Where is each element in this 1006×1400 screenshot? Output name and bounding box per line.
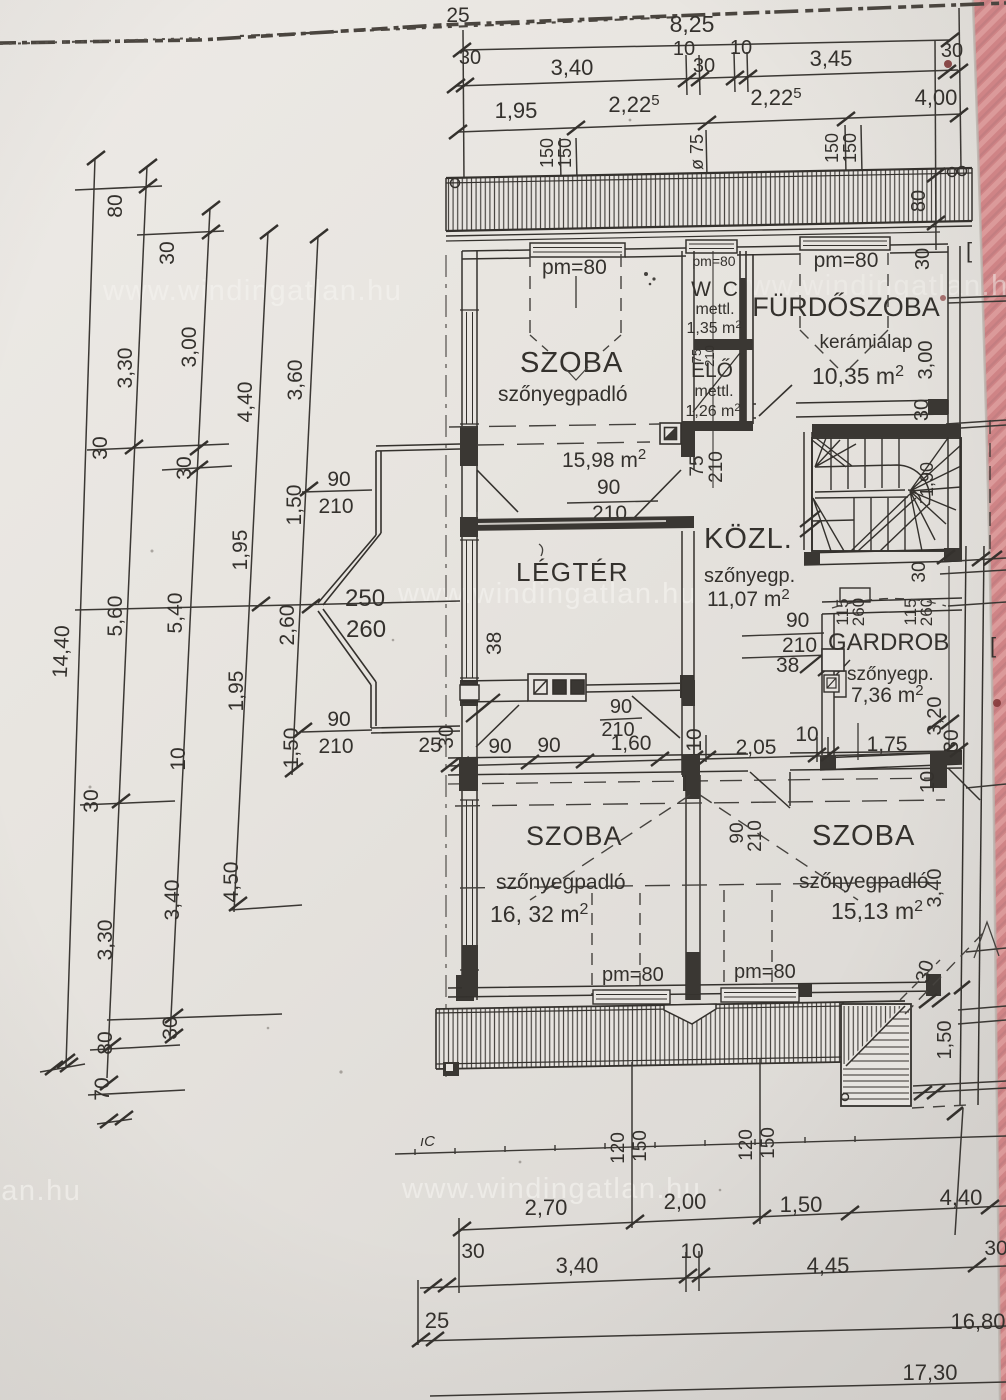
svg-text:150: 150	[630, 1130, 651, 1162]
svg-text:LÉGTÉR: LÉGTÉR	[516, 557, 629, 587]
svg-text:90: 90	[610, 696, 632, 718]
svg-text:3,00: 3,00	[178, 327, 201, 368]
svg-text:10: 10	[917, 771, 939, 793]
svg-text:GARDROB: GARDROB	[828, 629, 949, 656]
svg-text:7,36 m2: 7,36 m2	[851, 682, 924, 707]
svg-text:30: 30	[911, 399, 933, 421]
svg-text:szőnyegp.: szőnyegp.	[704, 565, 795, 587]
svg-text:16, 32 m2: 16, 32 m2	[490, 901, 589, 927]
svg-text:KÖZL.: KÖZL.	[704, 523, 793, 555]
svg-text:8,25: 8,25	[670, 11, 715, 37]
svg-text:250: 250	[345, 585, 385, 612]
svg-text:ø 75: ø 75	[687, 134, 707, 170]
svg-text:1,50: 1,50	[280, 728, 303, 769]
svg-text:3,30: 3,30	[94, 920, 117, 961]
svg-text:90: 90	[488, 735, 511, 758]
svg-text:10: 10	[683, 728, 706, 751]
svg-text:SZOBA: SZOBA	[526, 821, 623, 851]
svg-text:5,40: 5,40	[164, 593, 187, 634]
svg-text:90: 90	[786, 609, 809, 632]
svg-text:1,50: 1,50	[934, 1021, 956, 1060]
svg-text:150: 150	[840, 133, 860, 163]
svg-text:2,60: 2,60	[276, 605, 299, 646]
svg-text:2,05: 2,05	[736, 736, 777, 759]
svg-text:90: 90	[597, 476, 620, 499]
svg-text:75: 75	[687, 455, 708, 476]
svg-text:25: 25	[446, 4, 469, 27]
svg-text:1,50: 1,50	[780, 1192, 823, 1217]
svg-text:1,90: 1,90	[917, 462, 937, 497]
svg-text:210: 210	[702, 345, 717, 367]
svg-text:30: 30	[89, 436, 112, 459]
svg-text:3,60: 3,60	[284, 360, 307, 401]
svg-text:1,60: 1,60	[611, 732, 652, 755]
svg-text:150: 150	[555, 138, 575, 168]
svg-text:90: 90	[327, 468, 350, 491]
svg-text:1,35 m2: 1,35 m2	[686, 319, 741, 337]
svg-text:2,00: 2,00	[664, 1189, 707, 1214]
svg-text:30: 30	[984, 1237, 1006, 1260]
svg-text:14,40: 14,40	[49, 625, 75, 679]
svg-text:FÜRDŐSZOBA: FÜRDŐSZOBA	[752, 291, 940, 322]
svg-text:120: 120	[736, 1129, 757, 1161]
svg-text:10,35 m2: 10,35 m2	[812, 363, 904, 389]
svg-text:30: 30	[459, 47, 481, 69]
svg-text:pm=80: pm=80	[542, 256, 607, 279]
svg-text:15,13 m2: 15,13 m2	[831, 898, 923, 924]
svg-text:3,40: 3,40	[161, 880, 184, 921]
svg-text:3,20: 3,20	[924, 697, 946, 736]
svg-text:10: 10	[795, 723, 818, 746]
svg-text:30: 30	[435, 725, 458, 748]
svg-text:17,30: 17,30	[902, 1360, 957, 1385]
svg-text:70: 70	[91, 1077, 114, 1100]
svg-text:SZOBA: SZOBA	[812, 820, 915, 852]
svg-text:10: 10	[167, 747, 190, 770]
svg-text:30: 30	[461, 1240, 484, 1263]
svg-text:150: 150	[822, 133, 842, 163]
svg-text:3,00: 3,00	[915, 341, 937, 380]
svg-text:mettl.: mettl.	[694, 383, 733, 400]
svg-text:210: 210	[318, 495, 353, 518]
svg-text:38: 38	[776, 654, 799, 677]
svg-text:150: 150	[537, 138, 557, 168]
svg-text:ıC: ıC	[420, 1133, 435, 1150]
svg-text:30: 30	[156, 241, 179, 264]
svg-text:80: 80	[94, 1031, 117, 1054]
svg-text:30: 30	[912, 248, 934, 270]
svg-text:[: [	[966, 238, 972, 263]
svg-text:30: 30	[159, 1016, 182, 1039]
svg-text:2,70: 2,70	[525, 1195, 568, 1220]
svg-text:kerámialap: kerámialap	[820, 332, 913, 353]
svg-text:4,40: 4,40	[234, 382, 257, 423]
svg-text:3,45: 3,45	[810, 46, 853, 71]
svg-text:3,40: 3,40	[556, 1253, 599, 1278]
svg-text:pm=80: pm=80	[602, 964, 664, 986]
svg-text:3,40: 3,40	[551, 55, 594, 80]
svg-text:szőnyegpadló: szőnyegpadló	[496, 871, 626, 894]
svg-text:30: 30	[941, 40, 963, 62]
svg-text:www.windingatlan.hu: www.windingatlan.hu	[102, 275, 402, 307]
svg-text:szőnyegpadló: szőnyegpadló	[498, 383, 628, 406]
svg-text:15,98 m2: 15,98 m2	[562, 446, 646, 472]
svg-text:260: 260	[917, 598, 936, 626]
svg-text:10: 10	[673, 38, 695, 60]
svg-text:11,07 m2: 11,07 m2	[707, 586, 790, 611]
svg-text:150: 150	[758, 1127, 779, 1159]
svg-text:3,40: 3,40	[924, 869, 946, 908]
svg-text:3,30: 3,30	[114, 348, 137, 389]
svg-text:90: 90	[537, 734, 560, 757]
svg-text:szőnyegpadló: szőnyegpadló	[799, 870, 929, 893]
svg-text:260: 260	[849, 598, 868, 626]
svg-text:30: 30	[173, 456, 196, 479]
svg-text:1,95: 1,95	[225, 671, 248, 712]
svg-text:W C: W C	[691, 278, 741, 301]
svg-text:30: 30	[909, 561, 930, 582]
svg-text:4,45: 4,45	[807, 1253, 850, 1278]
svg-text:30: 30	[693, 55, 715, 77]
svg-text:mettl.: mettl.	[695, 301, 734, 318]
svg-text:90: 90	[327, 708, 350, 731]
svg-text:pm=80: pm=80	[692, 253, 735, 269]
svg-text:SZOBA: SZOBA	[520, 347, 623, 379]
svg-text:25: 25	[425, 1308, 449, 1333]
svg-text:210: 210	[318, 735, 353, 758]
svg-text:4,50: 4,50	[220, 862, 243, 903]
svg-text:www.windingatlan.hu: www.windingatlan.hu	[0, 1175, 81, 1207]
svg-text:1,95: 1,95	[495, 98, 538, 123]
svg-text:10: 10	[730, 37, 752, 59]
svg-text:5,60: 5,60	[104, 596, 127, 637]
svg-text:10: 10	[680, 1240, 703, 1263]
svg-text:1,95: 1,95	[229, 530, 252, 571]
svg-text:pm=80: pm=80	[814, 249, 879, 272]
svg-text:210: 210	[706, 451, 727, 483]
svg-text:[: [	[990, 633, 996, 658]
svg-text:120: 120	[608, 1132, 629, 1164]
svg-text:1,26 m2: 1,26 m2	[685, 402, 740, 420]
svg-text:1,50: 1,50	[283, 485, 306, 526]
svg-text:30: 30	[80, 789, 103, 812]
svg-text:260: 260	[346, 616, 386, 643]
svg-text:16,80: 16,80	[950, 1309, 1005, 1334]
svg-text:pm=80: pm=80	[734, 961, 796, 983]
svg-text:80: 80	[104, 194, 127, 217]
svg-text:80: 80	[908, 190, 930, 212]
svg-text:38: 38	[483, 632, 506, 655]
svg-text:4,40: 4,40	[940, 1185, 983, 1210]
